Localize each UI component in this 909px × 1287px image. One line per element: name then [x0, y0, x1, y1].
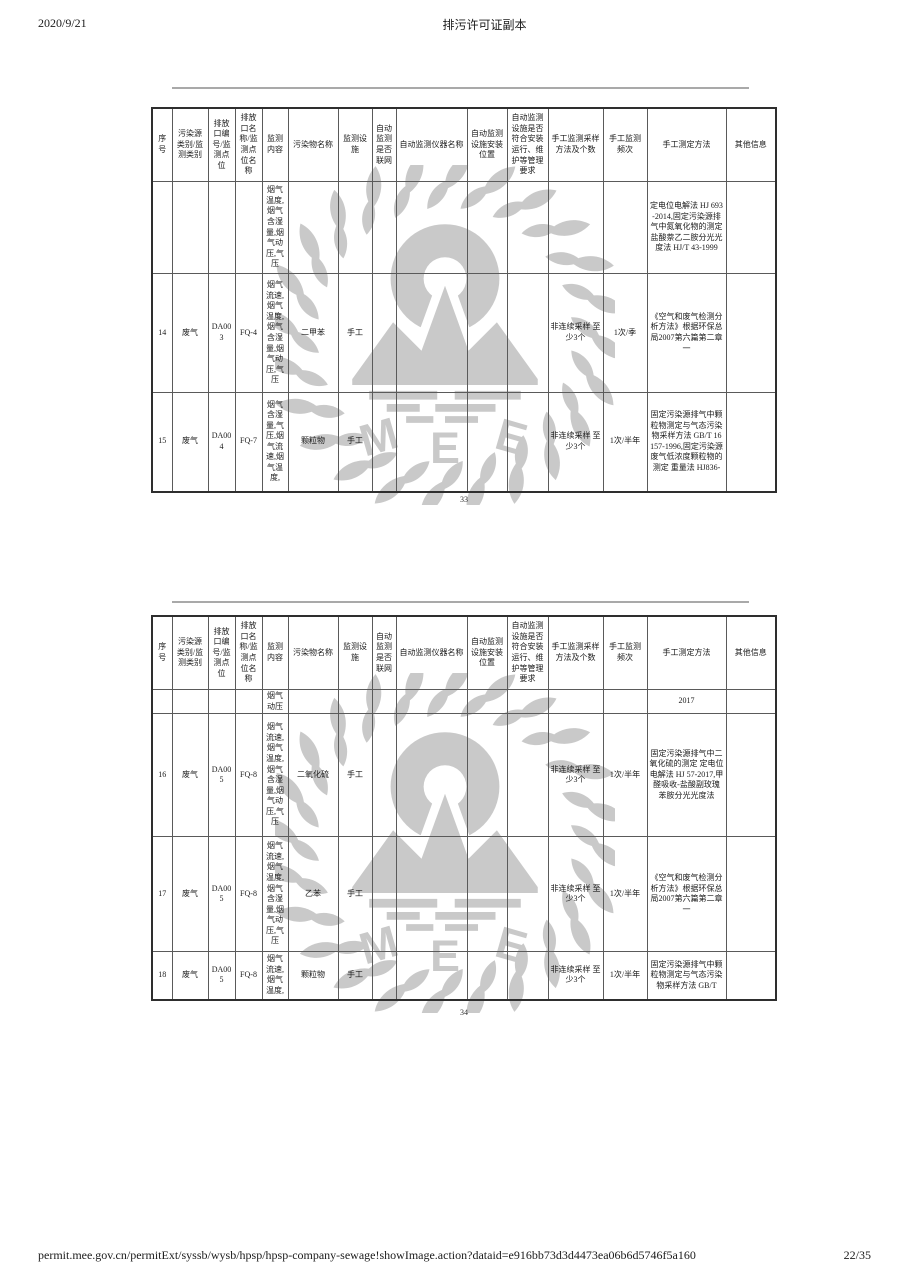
table-cell: 1次/半年 — [603, 952, 647, 1000]
table-cell: 废气 — [172, 274, 208, 393]
page-title: 排污许可证副本 — [442, 16, 526, 33]
table-cell: DA005 — [208, 837, 235, 952]
monitoring-table-2: 序号污染源类别/监测类别排放口编号/监测点位排放口名称/监测点位名称监测内容污染… — [151, 615, 777, 1001]
column-header: 排放口编号/监测点位 — [208, 616, 235, 690]
table-cell — [507, 393, 548, 492]
table-cell: 二甲苯 — [288, 274, 338, 393]
table-cell: 固定污染源排气中颗粒物测定与气态污染物采样方法 GB/T — [647, 952, 726, 1000]
column-header: 排放口名称/监测点位名称 — [235, 108, 262, 182]
table-row: 烟气动压2017 — [152, 690, 776, 714]
table-body: 烟气动压201716废气DA005FQ-8烟气流速,烟气温度,烟气含湿量,烟气动… — [152, 690, 776, 1000]
table-cell: 烟气动压 — [262, 690, 288, 714]
table-cell: 定电位电解法 HJ 693-2014,固定污染源排气中氮氧化物的测定 盐酸萘乙二… — [647, 182, 726, 274]
table-cell: 非连续采样 至少3个 — [548, 837, 603, 952]
table-cell: 废气 — [172, 714, 208, 837]
table-cell — [726, 714, 776, 837]
column-header: 污染物名称 — [288, 616, 338, 690]
table-cell — [726, 182, 776, 274]
table-cell: 颗粒物 — [288, 952, 338, 1000]
table-cell — [208, 182, 235, 274]
table-cell: FQ-8 — [235, 837, 262, 952]
table-cell: 手工 — [338, 274, 372, 393]
table-cell — [726, 690, 776, 714]
table-cell: DA005 — [208, 714, 235, 837]
table-cell — [507, 952, 548, 1000]
column-header: 自动监测仪器名称 — [396, 108, 467, 182]
column-header: 自动监测设施是否符合安装运行、维护等管理要求 — [507, 616, 548, 690]
column-header: 其他信息 — [726, 616, 776, 690]
table-row: 14废气DA003FQ-4烟气流速,烟气温度,烟气含湿量,烟气动压,气压二甲苯手… — [152, 274, 776, 393]
column-header: 手工测定方法 — [647, 616, 726, 690]
table-cell: 固定污染源排气中二氧化硫的测定 定电位电解法 HJ 57-2017,甲醛吸收-盐… — [647, 714, 726, 837]
table-cell: 2017 — [647, 690, 726, 714]
table-cell — [467, 182, 507, 274]
table-cell: 15 — [152, 393, 172, 492]
page-number: 33 — [151, 495, 777, 504]
table-cell — [467, 393, 507, 492]
table-cell: 烟气流速,烟气温度,烟气含湿量,烟气动压,气压 — [262, 714, 288, 837]
table-cell: 1次/半年 — [603, 837, 647, 952]
table-cell — [548, 690, 603, 714]
column-header: 污染物名称 — [288, 108, 338, 182]
table-cell — [208, 690, 235, 714]
table-cell — [396, 274, 467, 393]
table-cell: 手工 — [338, 393, 372, 492]
table-cell: 烟气流速,烟气温度, — [262, 952, 288, 1000]
column-header: 自动监测设施安装位置 — [467, 616, 507, 690]
table-header: 序号污染源类别/监测类别排放口编号/监测点位排放口名称/监测点位名称监测内容污染… — [152, 108, 776, 182]
table-cell — [726, 952, 776, 1000]
column-header: 手工监测采样方法及个数 — [548, 108, 603, 182]
footer-url: permit.mee.gov.cn/permitExt/syssb/wysb/h… — [38, 1248, 696, 1263]
column-header: 手工监测频次 — [603, 108, 647, 182]
table-cell: FQ-8 — [235, 714, 262, 837]
table-cell: 非连续采样 至少3个 — [548, 393, 603, 492]
table-cell — [507, 714, 548, 837]
column-header: 污染源类别/监测类别 — [172, 616, 208, 690]
table-cell: DA003 — [208, 274, 235, 393]
table-cell: 14 — [152, 274, 172, 393]
table-row: 18废气DA005FQ-8烟气流速,烟气温度,颗粒物手工非连续采样 至少3个1次… — [152, 952, 776, 1000]
table-cell: 手工 — [338, 952, 372, 1000]
table-cell — [603, 690, 647, 714]
table-cell: 烟气含湿量,气压,烟气流速,烟气温度, — [262, 393, 288, 492]
table-cell: DA004 — [208, 393, 235, 492]
table-cell — [235, 182, 262, 274]
column-header: 自动监测是否联网 — [372, 108, 396, 182]
table-cell — [288, 690, 338, 714]
table-cell — [396, 690, 467, 714]
table-cell — [372, 952, 396, 1000]
column-header: 自动监测仪器名称 — [396, 616, 467, 690]
table-cell: 非连续采样 至少3个 — [548, 274, 603, 393]
table-cell: 17 — [152, 837, 172, 952]
column-header: 监测设施 — [338, 616, 372, 690]
table-row: 15废气DA004FQ-7烟气含湿量,气压,烟气流速,烟气温度,颗粒物手工非连续… — [152, 393, 776, 492]
table-cell — [172, 690, 208, 714]
table-cell: 手工 — [338, 714, 372, 837]
table-cell — [372, 690, 396, 714]
table-header: 序号污染源类别/监测类别排放口编号/监测点位排放口名称/监测点位名称监测内容污染… — [152, 616, 776, 690]
print-footer: permit.mee.gov.cn/permitExt/syssb/wysb/h… — [38, 1248, 871, 1263]
table-cell — [467, 274, 507, 393]
table-cell: 二氧化硫 — [288, 714, 338, 837]
column-header: 排放口编号/监测点位 — [208, 108, 235, 182]
table-cell — [467, 837, 507, 952]
table-cell — [372, 274, 396, 393]
table-cell — [172, 182, 208, 274]
column-header: 手工监测采样方法及个数 — [548, 616, 603, 690]
table-cell: 1次/半年 — [603, 393, 647, 492]
table-cell: 1次/半年 — [603, 714, 647, 837]
column-header: 监测内容 — [262, 616, 288, 690]
table-cell — [507, 182, 548, 274]
column-header: 监测设施 — [338, 108, 372, 182]
table-cell: 乙苯 — [288, 837, 338, 952]
table-cell — [467, 952, 507, 1000]
table-cell: 非连续采样 至少3个 — [548, 714, 603, 837]
table-cell — [396, 714, 467, 837]
header-row: 序号污染源类别/监测类别排放口编号/监测点位排放口名称/监测点位名称监测内容污染… — [152, 108, 776, 182]
table-cell: 固定污染源排气中颗粒物测定与气态污染物采样方法 GB/T 16157-1996,… — [647, 393, 726, 492]
table-cell — [396, 393, 467, 492]
table-cell — [372, 714, 396, 837]
column-header: 序号 — [152, 108, 172, 182]
table-row: 16废气DA005FQ-8烟气流速,烟气温度,烟气含湿量,烟气动压,气压二氧化硫… — [152, 714, 776, 837]
table-cell — [338, 182, 372, 274]
table-cell — [396, 182, 467, 274]
table-cell: 颗粒物 — [288, 393, 338, 492]
table-cell: 《空气和废气检测分析方法》根据环保总局2007第六篇第二章一 — [647, 837, 726, 952]
column-header: 自动监测是否联网 — [372, 616, 396, 690]
column-header: 手工测定方法 — [647, 108, 726, 182]
table-cell — [726, 274, 776, 393]
header-row: 序号污染源类别/监测类别排放口编号/监测点位排放口名称/监测点位名称监测内容污染… — [152, 616, 776, 690]
table-row: 17废气DA005FQ-8烟气流速,烟气温度,烟气含湿量,烟气动压,气压乙苯手工… — [152, 837, 776, 952]
table-cell: 非连续采样 至少3个 — [548, 952, 603, 1000]
table-cell — [603, 182, 647, 274]
column-header: 手工监测频次 — [603, 616, 647, 690]
table-cell — [338, 690, 372, 714]
table-cell: DA005 — [208, 952, 235, 1000]
table-cell: 烟气流速,烟气温度,烟气含湿量,烟气动压,气压 — [262, 274, 288, 393]
table-body: 烟气温度,烟气含湿量,烟气动压,气压定电位电解法 HJ 693-2014,固定污… — [152, 182, 776, 492]
table-cell — [372, 837, 396, 952]
table-cell — [152, 690, 172, 714]
page-number: 34 — [151, 1008, 777, 1017]
table-cell — [372, 182, 396, 274]
table-cell: 废气 — [172, 837, 208, 952]
column-header: 污染源类别/监测类别 — [172, 108, 208, 182]
table-cell: 16 — [152, 714, 172, 837]
table-cell: 18 — [152, 952, 172, 1000]
table-cell — [372, 393, 396, 492]
table-cell: FQ-4 — [235, 274, 262, 393]
table-cell: 废气 — [172, 952, 208, 1000]
footer-page-indicator: 22/35 — [844, 1248, 871, 1263]
table-cell — [152, 182, 172, 274]
section-divider — [172, 87, 749, 89]
table-cell — [288, 182, 338, 274]
table-cell — [396, 837, 467, 952]
table-row: 烟气温度,烟气含湿量,烟气动压,气压定电位电解法 HJ 693-2014,固定污… — [152, 182, 776, 274]
table-cell — [235, 690, 262, 714]
table-cell: FQ-7 — [235, 393, 262, 492]
column-header: 排放口名称/监测点位名称 — [235, 616, 262, 690]
table-cell — [467, 690, 507, 714]
table-cell: 废气 — [172, 393, 208, 492]
table-cell — [467, 714, 507, 837]
table-cell: 《空气和废气检测分析方法》根据环保总局2007第六篇第二章一 — [647, 274, 726, 393]
table-cell — [396, 952, 467, 1000]
table-cell — [507, 274, 548, 393]
table-cell — [726, 393, 776, 492]
print-date: 2020/9/21 — [38, 16, 87, 31]
table-section-1: MEE 序号污染源类别/监测类别排放口编号/监测点位排放口名称/监测点位名称监测… — [151, 107, 777, 493]
column-header: 序号 — [152, 616, 172, 690]
table-cell: 1次/季 — [603, 274, 647, 393]
table-cell: 烟气流速,烟气温度,烟气含湿量,烟气动压,气压 — [262, 837, 288, 952]
section-divider — [172, 601, 749, 603]
table-cell — [507, 690, 548, 714]
table-cell — [548, 182, 603, 274]
column-header: 自动监测设施安装位置 — [467, 108, 507, 182]
column-header: 监测内容 — [262, 108, 288, 182]
column-header: 其他信息 — [726, 108, 776, 182]
table-cell: FQ-8 — [235, 952, 262, 1000]
column-header: 自动监测设施是否符合安装运行、维护等管理要求 — [507, 108, 548, 182]
table-cell: 烟气温度,烟气含湿量,烟气动压,气压 — [262, 182, 288, 274]
table-cell — [507, 837, 548, 952]
table-cell: 手工 — [338, 837, 372, 952]
monitoring-table-1: 序号污染源类别/监测类别排放口编号/监测点位排放口名称/监测点位名称监测内容污染… — [151, 107, 777, 493]
table-cell — [726, 837, 776, 952]
print-header: 2020/9/21 排污许可证副本 — [0, 16, 909, 34]
table-section-2: MEE 序号污染源类别/监测类别排放口编号/监测点位排放口名称/监测点位名称监测… — [151, 615, 777, 1001]
